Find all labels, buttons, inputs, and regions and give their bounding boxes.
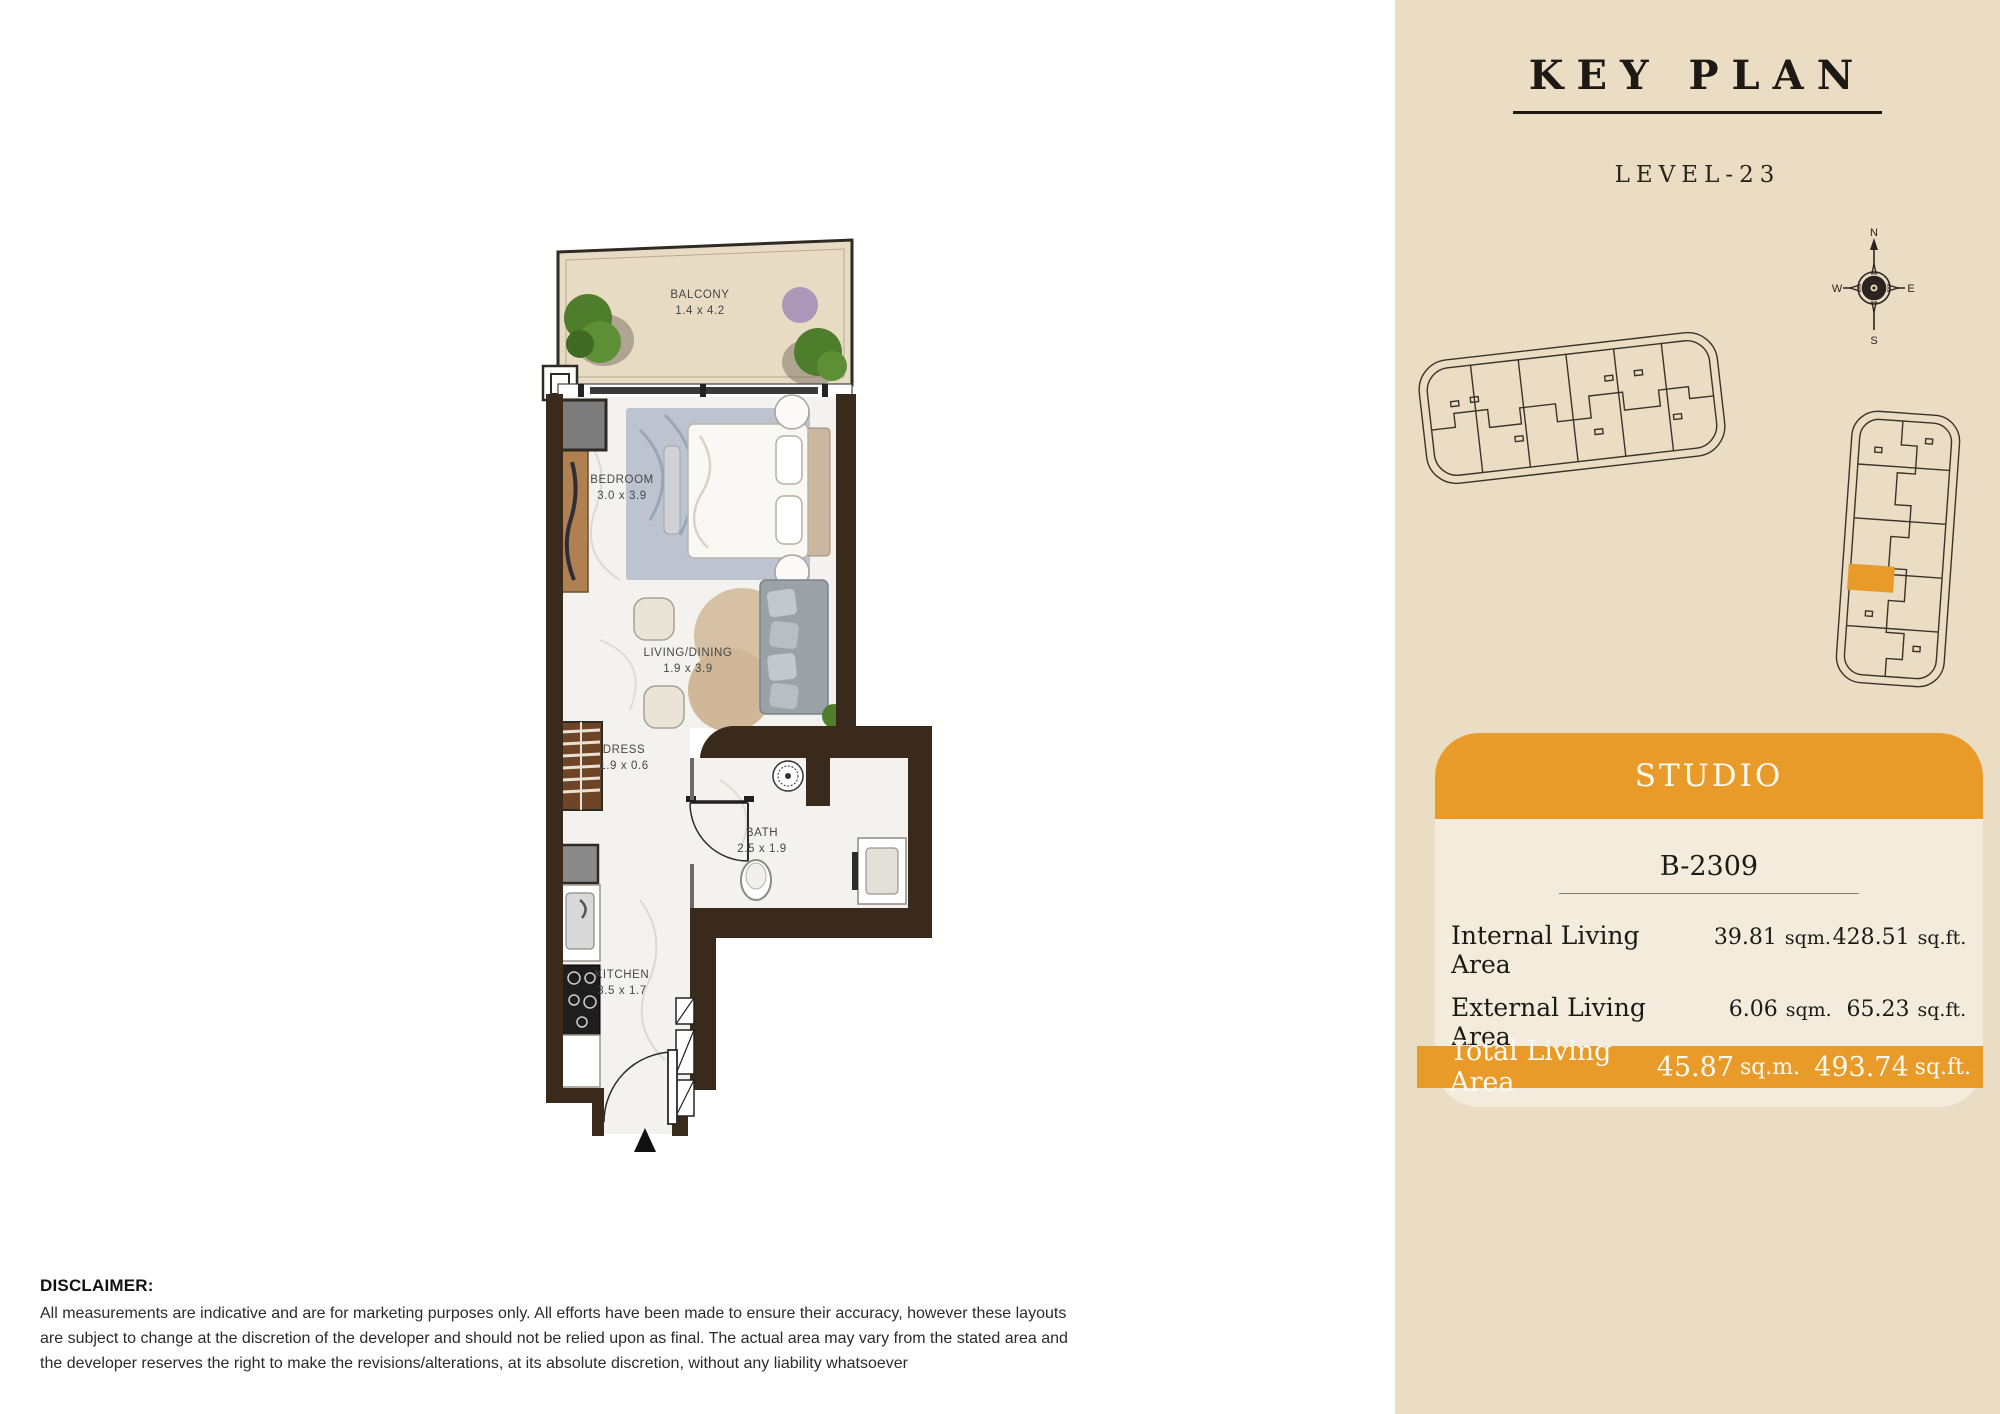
room-label-bedroom: BEDROOM3.0 x 3.9 <box>560 473 684 504</box>
disclaimer: DISCLAIMER: All measurements are indicat… <box>40 1276 1080 1376</box>
room-label-balcony: BALCONY1.4 x 4.2 <box>620 288 780 319</box>
level-label: LEVEL-23 <box>1395 162 2000 188</box>
unit-number: B-2309 <box>1435 851 1983 882</box>
room-label-dress: DRESS1.9 x 0.6 <box>564 743 684 774</box>
svg-text:N: N <box>1870 227 1878 239</box>
unit-number-underline <box>1559 893 1859 894</box>
building-outline-b <box>1835 410 1962 689</box>
balcony-area <box>543 240 852 400</box>
room-label-bath: BATH2.5 x 1.9 <box>702 826 822 857</box>
disclaimer-title: DISCLAIMER: <box>40 1276 1080 1296</box>
disclaimer-body: All measurements are indicative and are … <box>40 1302 1080 1376</box>
floor-plan-drawing <box>520 180 990 1180</box>
unit-type-header: STUDIO <box>1435 733 1983 819</box>
floor-plan-sheet: BALCONY1.4 x 4.2 BEDROOM3.0 x 3.9 LIVING… <box>0 0 2000 1414</box>
total-area-bar: Total Living Area 45.87 sq.m. 493.74 sq.… <box>1417 1046 1983 1088</box>
highlighted-unit <box>1847 564 1895 593</box>
service-shafts <box>676 998 694 1116</box>
key-plan-buildings <box>1395 250 2000 720</box>
kitchen-fixtures <box>560 845 600 1087</box>
balcony-window <box>558 384 852 398</box>
key-plan-title: KEY PLAN <box>1395 52 2000 114</box>
internal-area-row: Internal Living Area 39.81 sqm. 428.51 s… <box>1451 921 1967 979</box>
room-label-kitchen: KITCHEN3.5 x 1.7 <box>562 968 682 999</box>
room-label-living-dining: LIVING/DINING1.9 x 3.9 <box>608 646 768 677</box>
building-outline-a <box>1416 329 1728 486</box>
